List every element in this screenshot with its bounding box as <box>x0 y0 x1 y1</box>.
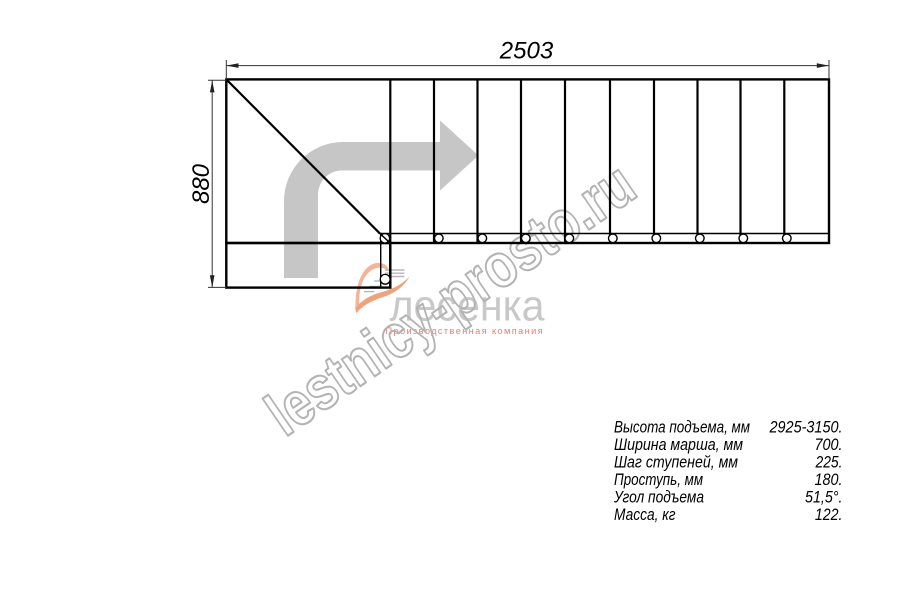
svg-text:Шаг ступеней, мм: Шаг ступеней, мм <box>614 454 738 472</box>
svg-text:700.: 700. <box>815 436 843 454</box>
svg-text:51,5°.: 51,5°. <box>805 489 843 507</box>
svg-text:225.: 225. <box>815 454 843 472</box>
svg-text:Проступь, мм: Проступь, мм <box>614 471 703 489</box>
svg-text:122.: 122. <box>815 506 843 524</box>
svg-text:Масса, кг: Масса, кг <box>614 506 676 524</box>
svg-text:180.: 180. <box>815 471 843 489</box>
svg-text:Ширина марша, мм: Ширина марша, мм <box>614 436 743 454</box>
svg-text:2925-3150.: 2925-3150. <box>769 418 843 436</box>
svg-text:880: 880 <box>188 163 215 204</box>
svg-text:Высота подъема, мм: Высота подъема, мм <box>614 418 750 436</box>
svg-text:2503: 2503 <box>499 38 554 65</box>
svg-text:Угол подъема: Угол подъема <box>613 489 704 507</box>
